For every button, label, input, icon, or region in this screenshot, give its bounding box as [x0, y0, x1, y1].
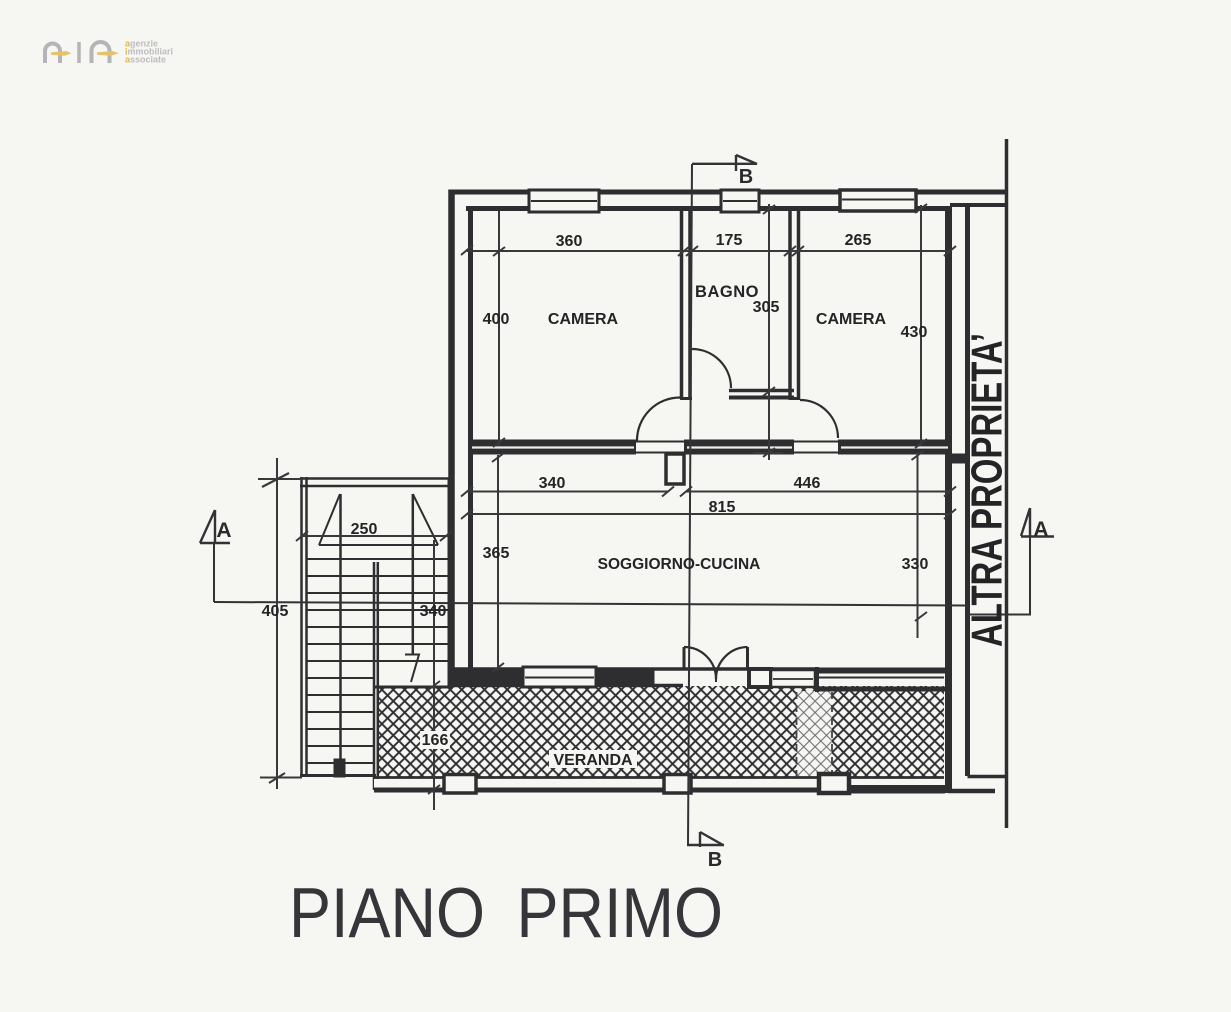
svg-text:430: 430	[901, 324, 928, 341]
svg-text:175: 175	[716, 232, 743, 249]
svg-text:446: 446	[794, 475, 821, 492]
svg-text:B: B	[708, 849, 722, 871]
svg-text:405: 405	[262, 603, 289, 620]
svg-text:305: 305	[753, 299, 780, 316]
svg-text:BAGNO: BAGNO	[695, 283, 759, 301]
svg-text:340: 340	[539, 475, 566, 492]
svg-text:B: B	[739, 166, 753, 188]
svg-text:166: 166	[422, 732, 449, 749]
svg-text:365: 365	[483, 545, 510, 562]
svg-text:815: 815	[709, 499, 736, 516]
svg-text:ALTRA PROPRIETA’: ALTRA PROPRIETA’	[963, 333, 1012, 647]
svg-text:330: 330	[902, 556, 929, 573]
svg-text:VERANDA: VERANDA	[553, 752, 633, 769]
svg-text:360: 360	[556, 233, 583, 250]
svg-text:CAMERA: CAMERA	[548, 311, 619, 328]
svg-text:PIANO PRIMO: PIANO PRIMO	[289, 874, 723, 953]
svg-text:SOGGIORNO-CUCINA: SOGGIORNO-CUCINA	[598, 556, 761, 573]
svg-text:A: A	[1033, 518, 1048, 541]
svg-text:265: 265	[845, 232, 872, 249]
svg-text:400: 400	[483, 311, 510, 328]
svg-text:associate: associate	[125, 55, 166, 65]
svg-text:A: A	[216, 519, 231, 542]
svg-text:340: 340	[420, 603, 447, 620]
svg-text:CAMERA: CAMERA	[816, 311, 887, 328]
svg-text:250: 250	[351, 521, 378, 538]
